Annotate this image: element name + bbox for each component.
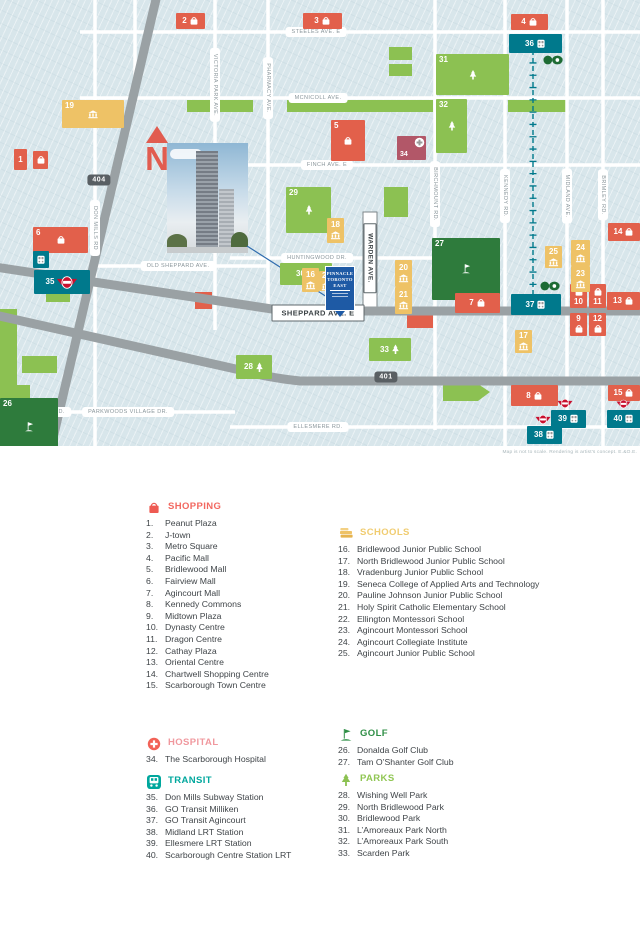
legend-item-label: Ellington Montessori School xyxy=(357,614,576,626)
legend-item-parks: 28.Wishing Well Park xyxy=(338,790,548,802)
school-icon xyxy=(548,257,559,267)
map-marker-12: 12 xyxy=(589,313,606,336)
school-icon xyxy=(398,273,409,283)
legend-item-label: Agincourt Collegiate Institute xyxy=(357,637,576,649)
legend-item-number: 9. xyxy=(146,611,165,623)
legend-item-number: 2. xyxy=(146,530,165,542)
legend-item-parks: 33.Scarden Park xyxy=(338,848,548,860)
legend-item-shopping: 15.Scarborough Town Centre xyxy=(146,680,346,692)
bag-icon xyxy=(36,155,46,165)
legend-item-label: J-town xyxy=(165,530,346,542)
map-marker-1: 1 xyxy=(14,149,27,170)
legend-item-number: 15. xyxy=(146,680,165,692)
street-label: MIDLAND AVE. xyxy=(562,169,572,224)
school-icon xyxy=(330,230,341,240)
bag-icon xyxy=(593,324,603,334)
legend-item-transit: 40.Scarborough Centre Station LRT xyxy=(146,850,356,862)
map-icon-train xyxy=(33,251,49,268)
legend-section-shopping: SHOPPING 1.Peanut Plaza2.J-town3.Metro S… xyxy=(146,500,346,692)
map-marker-7: 7 xyxy=(455,293,500,313)
legend-item-label: L’Amoreaux Park North xyxy=(357,825,548,837)
bag-icon xyxy=(476,298,486,308)
photo-tower xyxy=(196,151,218,247)
street-label: KENNEDY RD. xyxy=(500,169,510,223)
legend-item-number: 33. xyxy=(338,848,357,860)
school-icon xyxy=(575,279,586,289)
legend-item-label: Vradenburg Junior Public School xyxy=(357,567,576,579)
street-label: DON MILLS RD xyxy=(90,200,100,256)
bag-icon xyxy=(321,16,331,26)
sign-subtext-bar xyxy=(332,296,349,297)
map-marker-40: 40 xyxy=(607,410,640,428)
transit-train-icon xyxy=(146,774,161,789)
bag-icon xyxy=(624,296,634,306)
ttc-icon xyxy=(535,414,551,425)
legend-item-label: Don Mills Subway Station xyxy=(165,792,356,804)
street-label: BIRCHMOUNT RD. xyxy=(430,161,440,227)
map-marker-29: 29 xyxy=(286,187,331,233)
sign-pointer xyxy=(335,311,345,317)
legend-item-shopping: 2.J-town xyxy=(146,530,346,542)
map-marker-35: 35 xyxy=(34,270,90,294)
map-marker-38: 38 xyxy=(527,426,562,444)
legend-item-transit: 36.GO Transit Milliken xyxy=(146,804,356,816)
legend-section-hospital: HOSPITAL 34.The Scarborough Hospital xyxy=(146,736,356,766)
legend-item-label: Scarden Park xyxy=(357,848,548,860)
legend-item-number: 23. xyxy=(338,625,357,637)
map-marker-36: 36 xyxy=(509,34,562,53)
legend-item-number: 5. xyxy=(146,564,165,576)
legend-item-number: 37. xyxy=(146,815,165,827)
map-marker-11: 11 xyxy=(589,284,606,308)
tree-icon xyxy=(468,69,477,80)
legend-item-label: North Bridlewood Park xyxy=(357,802,548,814)
schools-icon xyxy=(338,526,353,541)
bag-icon xyxy=(528,17,538,27)
street-label: WARDEN AVE. xyxy=(364,223,377,293)
legend-item-number: 18. xyxy=(338,567,357,579)
map-marker-34: 34 xyxy=(397,136,426,160)
bag-icon xyxy=(56,235,66,245)
legend-item-number: 13. xyxy=(146,657,165,669)
map-marker-33: 33 xyxy=(369,338,411,361)
legend-item-number: 21. xyxy=(338,602,357,614)
legend-item-label: Scarborough Town Centre xyxy=(165,680,346,692)
street-label: BRIMLEY RD. xyxy=(598,169,608,220)
legend-item-label: Bridlewood Junior Public School xyxy=(357,544,576,556)
legend-item-label: Cathay Plaza xyxy=(165,646,346,658)
legend-item-shopping: 9.Midtown Plaza xyxy=(146,611,346,623)
flag-icon xyxy=(461,264,472,275)
legend-section-transit: TRANSIT 35.Don Mills Subway Station36.GO… xyxy=(146,774,356,862)
legend-item-schools: 23.Agincourt Montessori School xyxy=(338,625,576,637)
legend-item-number: 35. xyxy=(146,792,165,804)
tree-icon xyxy=(391,344,400,355)
legend-title-schools: SCHOOLS xyxy=(360,527,410,538)
map-disclaimer: Map is not to scale. Rendering is artist… xyxy=(502,450,637,455)
street-label: VICTORIA PARK AVE. xyxy=(210,48,220,122)
legend-section-parks: PARKS 28.Wishing Well Park29.North Bridl… xyxy=(338,772,548,860)
legend-item-label: Seneca College of Applied Arts and Techn… xyxy=(357,579,576,591)
parks-tree-icon xyxy=(338,772,353,787)
legend-item-schools: 18.Vradenburg Junior Public School xyxy=(338,567,576,579)
train-icon xyxy=(624,414,634,424)
legend-item-number: 7. xyxy=(146,588,165,600)
street-label: PARKWOODS VILLAGE DR. xyxy=(82,407,174,417)
legend-item-label: Pauline Johnson Junior Public School xyxy=(357,590,576,602)
highway-shield-401: 401 xyxy=(374,372,397,383)
map-marker-5: 5 xyxy=(331,120,365,161)
legend-item-number: 11. xyxy=(146,634,165,646)
legend-item-schools: 19.Seneca College of Applied Arts and Te… xyxy=(338,579,576,591)
legend-item-golf: 27.Tam O’Shanter Golf Club xyxy=(338,757,548,769)
train-icon xyxy=(545,430,555,440)
legend-item-transit: 35.Don Mills Subway Station xyxy=(146,792,356,804)
legend-item-transit: 37.GO Transit Agincourt xyxy=(146,815,356,827)
legend-item-number: 22. xyxy=(338,614,357,626)
bag-icon xyxy=(533,391,543,401)
map-marker-24: 24 xyxy=(571,240,590,266)
legend-item-number: 30. xyxy=(338,813,357,825)
map-marker-3: 3 xyxy=(303,13,342,29)
legend-item-number: 31. xyxy=(338,825,357,837)
flag-icon xyxy=(24,421,35,432)
map-marker-17: 17 xyxy=(515,330,532,353)
street-label: PHARMACY AVE. xyxy=(263,57,273,119)
map-marker-37: 37 xyxy=(511,294,561,315)
street-label: FINCH AVE. E xyxy=(301,160,353,170)
legend-item-hospital: 34.The Scarborough Hospital xyxy=(146,754,356,766)
legend-item-number: 6. xyxy=(146,576,165,588)
legend-item-number: 32. xyxy=(338,836,357,848)
legend-item-label: Midland LRT Station xyxy=(165,827,356,839)
legend-item-number: 40. xyxy=(146,850,165,862)
legend-item-number: 8. xyxy=(146,599,165,611)
legend-item-label: Kennedy Commons xyxy=(165,599,346,611)
bag-icon xyxy=(593,287,603,297)
legend-item-label: Peanut Plaza xyxy=(165,518,346,530)
legend-item-shopping: 4.Pacific Mall xyxy=(146,553,346,565)
train-icon xyxy=(536,39,546,49)
legend-item-shopping: 14.Chartwell Shopping Centre xyxy=(146,669,346,681)
legend-item-parks: 29.North Bridlewood Park xyxy=(338,802,548,814)
legend-item-label: Metro Square xyxy=(165,541,346,553)
legend-item-shopping: 12.Cathay Plaza xyxy=(146,646,346,658)
legend-item-label: Wishing Well Park xyxy=(357,790,548,802)
photo-street xyxy=(167,247,248,253)
legend-item-label: Chartwell Shopping Centre xyxy=(165,669,346,681)
legend-item-number: 25. xyxy=(338,648,357,660)
legend-item-schools: 24.Agincourt Collegiate Institute xyxy=(338,637,576,649)
legend-item-parks: 31.L’Amoreaux Park North xyxy=(338,825,548,837)
map-icon-go xyxy=(540,281,560,291)
go-icon xyxy=(540,281,560,291)
legend-item-schools: 25.Agincourt Junior Public School xyxy=(338,648,576,660)
legend-item-label: Agincourt Montessori School xyxy=(357,625,576,637)
sign-line-2: TORONTO xyxy=(326,277,354,283)
legend-item-number: 14. xyxy=(146,669,165,681)
legend-item-label: GO Transit Agincourt xyxy=(165,815,356,827)
map-marker-27: 27 xyxy=(432,238,500,300)
legend-item-number: 16. xyxy=(338,544,357,556)
legend-item-label: Holy Spirit Catholic Elementary School xyxy=(357,602,576,614)
legend-item-schools: 21.Holy Spirit Catholic Elementary Schoo… xyxy=(338,602,576,614)
tree-icon xyxy=(255,362,264,373)
ttc-icon xyxy=(56,276,78,289)
shopping-bag-icon xyxy=(146,500,161,515)
legend-item-label: Fairview Mall xyxy=(165,576,346,588)
map-marker-31: 31 xyxy=(436,54,509,95)
train-icon xyxy=(536,300,546,310)
bag-icon xyxy=(343,136,353,146)
legend-item-shopping: 7.Agincourt Mall xyxy=(146,588,346,600)
legend-item-transit: 38.Midland LRT Station xyxy=(146,827,356,839)
legend-item-shopping: 5.Bridlewood Mall xyxy=(146,564,346,576)
legend-item-number: 29. xyxy=(338,802,357,814)
legend-item-label: Scarborough Centre Station LRT xyxy=(165,850,356,862)
legend-item-number: 39. xyxy=(146,838,165,850)
legend-item-label: Dynasty Centre xyxy=(165,622,346,634)
cross-icon xyxy=(414,137,425,148)
legend-item-schools: 16.Bridlewood Junior Public School xyxy=(338,544,576,556)
ttc-icon xyxy=(616,399,631,409)
legend-item-schools: 20.Pauline Johnson Junior Public School xyxy=(338,590,576,602)
legend-item-label: Tam O’Shanter Golf Club xyxy=(357,757,548,769)
area-map: N PINNACLE TORONTO EAST STEELES AVE. EMC… xyxy=(0,0,640,446)
map-marker-19: 19 xyxy=(62,100,124,128)
sign-line-3: EAST xyxy=(326,283,354,289)
legend-item-number: 38. xyxy=(146,827,165,839)
legend-item-label: Agincourt Junior Public School xyxy=(357,648,576,660)
legend-item-label: The Scarborough Hospital xyxy=(165,754,356,766)
legend-item-shopping: 6.Fairview Mall xyxy=(146,576,346,588)
legend-item-label: GO Transit Milliken xyxy=(165,804,356,816)
legend-item-shopping: 1.Peanut Plaza xyxy=(146,518,346,530)
legend-item-number: 26. xyxy=(338,745,357,757)
legend-item-number: 4. xyxy=(146,553,165,565)
property-rendering-photo xyxy=(167,143,248,253)
legend-title-transit: TRANSIT xyxy=(168,775,212,786)
bag-icon xyxy=(189,16,199,26)
legend-title-shopping: SHOPPING xyxy=(168,501,221,512)
school-icon xyxy=(575,253,586,263)
map-marker-20: 20 xyxy=(395,260,412,287)
legend-item-shopping: 10.Dynasty Centre xyxy=(146,622,346,634)
legend-item-number: 12. xyxy=(146,646,165,658)
legend-item-number: 27. xyxy=(338,757,357,769)
legend-item-label: Dragon Centre xyxy=(165,634,346,646)
map-marker-4: 4 xyxy=(511,14,548,30)
legend-item-schools: 17.North Bridlewood Junior Public School xyxy=(338,556,576,568)
legend-section-golf: GOLF 26.Donalda Golf Club27.Tam O’Shante… xyxy=(338,727,548,768)
map-marker-2: 2 xyxy=(176,13,205,29)
legend-item-label: Ellesmere LRT Station xyxy=(165,838,356,850)
legend-item-shopping: 11.Dragon Centre xyxy=(146,634,346,646)
map-marker-14: 14 xyxy=(608,223,640,241)
map-marker-32: 32 xyxy=(436,99,467,153)
map-marker-13: 13 xyxy=(607,292,640,310)
map-icon-go xyxy=(543,55,563,65)
legend-item-parks: 32.L’Amoreaux Park South xyxy=(338,836,548,848)
legend-item-label: Oriental Centre xyxy=(165,657,346,669)
hospital-cross-icon xyxy=(146,736,161,751)
map-marker-28: 28 xyxy=(236,355,272,379)
ttc-icon xyxy=(557,398,573,409)
map-icon-ttc xyxy=(535,414,551,425)
legend-item-number: 28. xyxy=(338,790,357,802)
legend-item-number: 10. xyxy=(146,622,165,634)
tree-icon xyxy=(447,121,456,132)
legend-item-number: 1. xyxy=(146,518,165,530)
map-icon-bag xyxy=(33,151,48,169)
street-label: OLD SHEPPARD AVE. xyxy=(141,261,216,271)
legend-item-number: 19. xyxy=(338,579,357,591)
legend-item-label: Midtown Plaza xyxy=(165,611,346,623)
go-icon xyxy=(543,55,563,65)
map-icon-ttc xyxy=(557,398,573,409)
legend-item-label: L’Amoreaux Park South xyxy=(357,836,548,848)
map-marker-16: 16 xyxy=(302,268,319,292)
legend-title-parks: PARKS xyxy=(360,773,395,784)
street-label: MCNICOLL AVE. xyxy=(289,93,348,103)
bag-icon xyxy=(574,324,584,334)
legend-item-shopping: 13.Oriental Centre xyxy=(146,657,346,669)
legend-item-golf: 26.Donalda Golf Club xyxy=(338,745,548,757)
legend-item-number: 3. xyxy=(146,541,165,553)
map-marker-21: 21 xyxy=(395,287,412,314)
map-marker-26: 26 xyxy=(0,398,58,446)
highway-shield-404: 404 xyxy=(87,175,110,186)
train-icon xyxy=(569,414,579,424)
legend-item-schools: 22.Ellington Montessori School xyxy=(338,614,576,626)
school-icon xyxy=(518,341,529,351)
legend-title-golf: GOLF xyxy=(360,728,388,739)
map-marker-25: 25 xyxy=(545,246,562,268)
legend-item-label: Pacific Mall xyxy=(165,553,346,565)
map-marker-39: 39 xyxy=(551,410,586,428)
legend-item-transit: 39.Ellesmere LRT Station xyxy=(146,838,356,850)
map-marker-18: 18 xyxy=(327,218,344,243)
legend-item-number: 34. xyxy=(146,754,165,766)
sign-divider xyxy=(330,290,350,291)
bag-icon xyxy=(624,227,634,237)
legend-item-number: 36. xyxy=(146,804,165,816)
bag-icon xyxy=(624,388,634,398)
legend-item-label: Donalda Golf Club xyxy=(357,745,548,757)
sign-line-1: PINNACLE xyxy=(326,271,354,277)
map-marker-6: 6 xyxy=(33,227,88,253)
map-marker-8: 8 xyxy=(511,385,558,406)
legend-item-number: 20. xyxy=(338,590,357,602)
legend-title-hospital: HOSPITAL xyxy=(168,737,219,748)
legend-item-shopping: 3.Metro Square xyxy=(146,541,346,553)
street-label: ELLESMERE RD. xyxy=(287,422,348,432)
legend-item-number: 24. xyxy=(338,637,357,649)
legend-item-label: Agincourt Mall xyxy=(165,588,346,600)
tree-icon xyxy=(304,205,313,216)
legend-item-parks: 30.Bridlewood Park xyxy=(338,813,548,825)
train-icon xyxy=(36,255,46,265)
map-marker-23: 23 xyxy=(571,266,590,292)
legend-item-label: North Bridlewood Junior Public School xyxy=(357,556,576,568)
pinnacle-toronto-east-sign: PINNACLE TORONTO EAST xyxy=(325,266,355,311)
golf-flag-icon xyxy=(338,727,353,742)
legend-item-label: Bridlewood Park xyxy=(357,813,548,825)
legend-item-shopping: 8.Kennedy Commons xyxy=(146,599,346,611)
map-marker-9: 9 xyxy=(570,313,587,336)
map-icon-ttc xyxy=(616,399,631,409)
school-icon xyxy=(305,280,316,290)
school-icon xyxy=(398,300,409,310)
legend-section-schools: SCHOOLS 16.Bridlewood Junior Public Scho… xyxy=(338,526,576,660)
sign-subtext-bar xyxy=(332,293,349,294)
school-icon xyxy=(88,109,99,119)
legend-item-label: Bridlewood Mall xyxy=(165,564,346,576)
legend-item-number: 17. xyxy=(338,556,357,568)
